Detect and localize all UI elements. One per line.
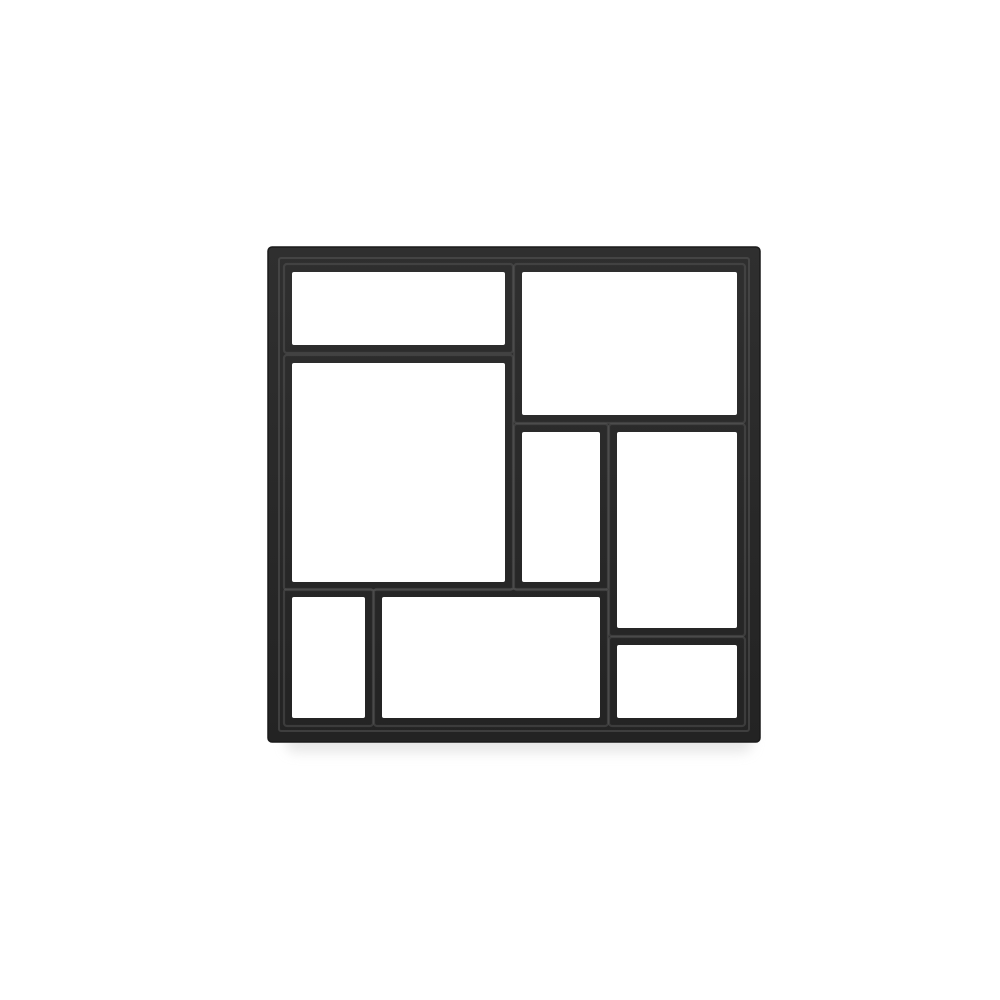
cavity-top-right [522,272,737,415]
cavity-bottom-middle [382,597,600,718]
paving-mold-image [0,0,1000,1000]
cavity-right-tall [617,432,737,628]
cavity-top-left [292,272,505,345]
cavity-bottom-right [617,645,737,718]
product-photo-canvas [0,0,1000,1000]
cavity-bottom-left [292,597,365,718]
cavity-center-middle [522,432,600,582]
cavity-left-large [292,363,505,582]
